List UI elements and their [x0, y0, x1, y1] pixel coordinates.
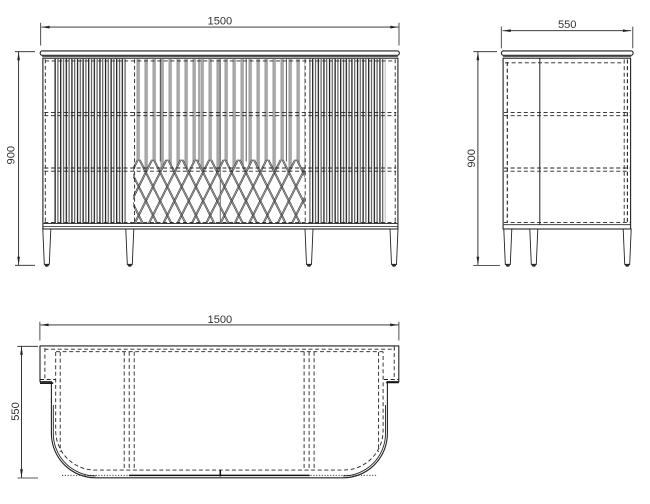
svg-text:550: 550 [10, 402, 22, 421]
svg-text:550: 550 [558, 19, 577, 31]
svg-text:1500: 1500 [208, 314, 233, 326]
svg-text:900: 900 [466, 149, 478, 168]
svg-text:1500: 1500 [208, 16, 233, 28]
svg-text:900: 900 [6, 146, 18, 165]
